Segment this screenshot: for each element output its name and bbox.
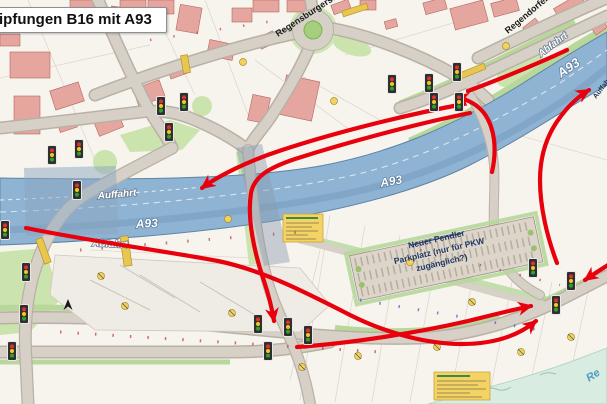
traffic-light-icon <box>8 342 17 361</box>
traffic-light-icon <box>22 263 31 282</box>
traffic-light-icon <box>264 342 273 361</box>
map-svg: Regensburgerstr. Regendorferstr. Abfahrt… <box>0 0 607 404</box>
traffic-light-icon <box>552 296 561 315</box>
traffic-light-icon <box>180 93 189 112</box>
traffic-light-icon <box>165 123 174 142</box>
traffic-light-icon <box>254 315 263 334</box>
traffic-light-icon <box>304 326 313 345</box>
traffic-light-icon <box>1 221 10 240</box>
traffic-light-icon <box>20 305 29 324</box>
map-canvas: Regensburgerstr. Regendorferstr. Abfahrt… <box>0 0 607 404</box>
traffic-light-icon <box>73 181 82 200</box>
traffic-light-icon <box>284 318 293 337</box>
traffic-light-icon <box>455 93 464 112</box>
traffic-light-icon <box>157 97 166 116</box>
traffic-light-icon <box>425 74 434 93</box>
traffic-light-icon <box>453 63 462 82</box>
highway-label-a93-left: A93 <box>134 216 158 231</box>
traffic-light-icon <box>529 259 538 278</box>
traffic-light-icon <box>48 146 57 165</box>
traffic-light-icon <box>567 272 576 291</box>
page-title: ipfungen B16 mit A93 <box>0 7 167 33</box>
traffic-light-icon <box>430 93 439 112</box>
traffic-light-icon <box>388 75 397 94</box>
traffic-light-icon <box>75 140 84 159</box>
